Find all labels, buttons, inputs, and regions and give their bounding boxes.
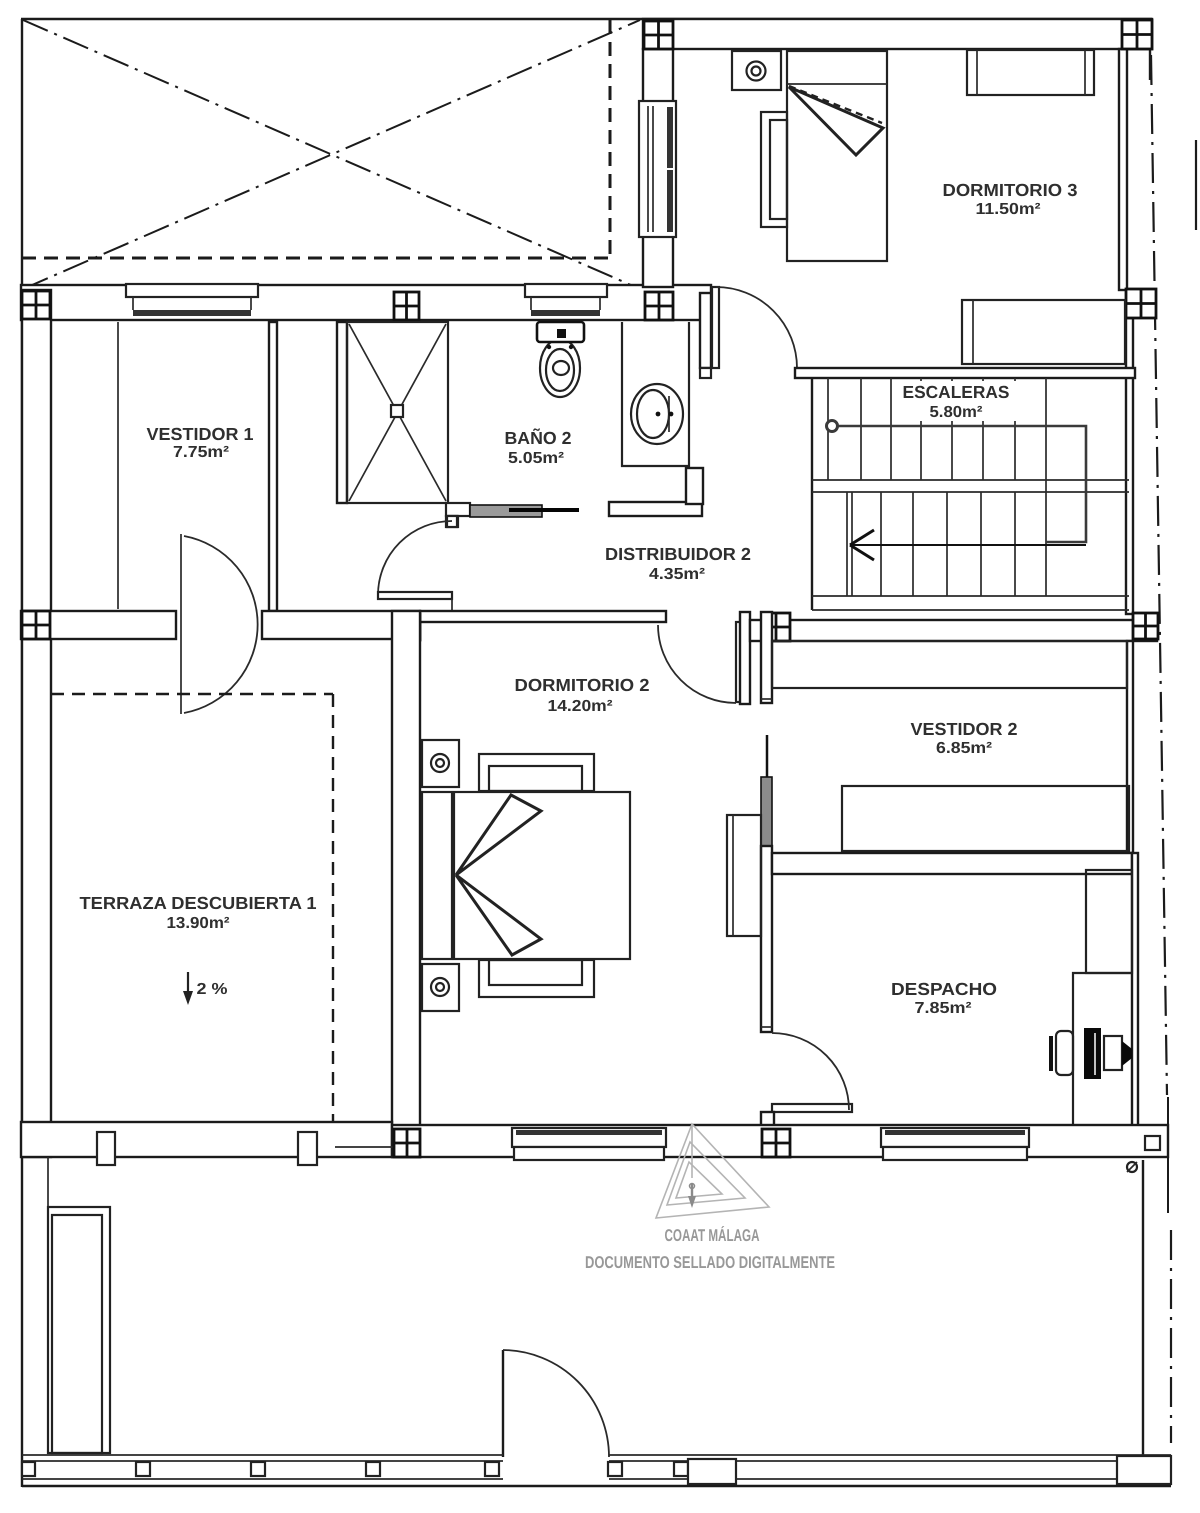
svg-text:ESCALERAS: ESCALERAS bbox=[903, 382, 1010, 402]
svg-text:BAÑO 2: BAÑO 2 bbox=[505, 428, 572, 448]
svg-text:7.85m²: 7.85m² bbox=[915, 1000, 972, 1017]
svg-text:7.75m²: 7.75m² bbox=[173, 444, 229, 461]
svg-text:11.50m²: 11.50m² bbox=[976, 201, 1041, 218]
svg-text:VESTIDOR 1: VESTIDOR 1 bbox=[147, 424, 254, 444]
svg-text:DORMITORIO 3: DORMITORIO 3 bbox=[943, 180, 1078, 200]
svg-text:DISTRIBUIDOR 2: DISTRIBUIDOR 2 bbox=[605, 544, 751, 564]
svg-text:14.20m²: 14.20m² bbox=[548, 698, 613, 715]
svg-text:2 %: 2 % bbox=[197, 981, 228, 998]
svg-text:4.35m²: 4.35m² bbox=[649, 566, 705, 583]
svg-text:DOCUMENTO SELLADO DIGITALMENTE: DOCUMENTO SELLADO DIGITALMENTE bbox=[585, 1253, 835, 1272]
svg-text:6.85m²: 6.85m² bbox=[936, 740, 992, 757]
svg-text:VESTIDOR 2: VESTIDOR 2 bbox=[911, 719, 1018, 739]
svg-text:13.90m²: 13.90m² bbox=[167, 915, 230, 932]
svg-text:DESPACHO: DESPACHO bbox=[891, 979, 997, 999]
svg-text:COAAT MÁLAGA: COAAT MÁLAGA bbox=[665, 1225, 760, 1245]
svg-text:TERRAZA DESCUBIERTA 1: TERRAZA DESCUBIERTA 1 bbox=[80, 893, 317, 913]
svg-text:5.80m²: 5.80m² bbox=[930, 404, 983, 421]
svg-text:DORMITORIO 2: DORMITORIO 2 bbox=[515, 675, 650, 695]
svg-text:5.05m²: 5.05m² bbox=[508, 450, 564, 467]
